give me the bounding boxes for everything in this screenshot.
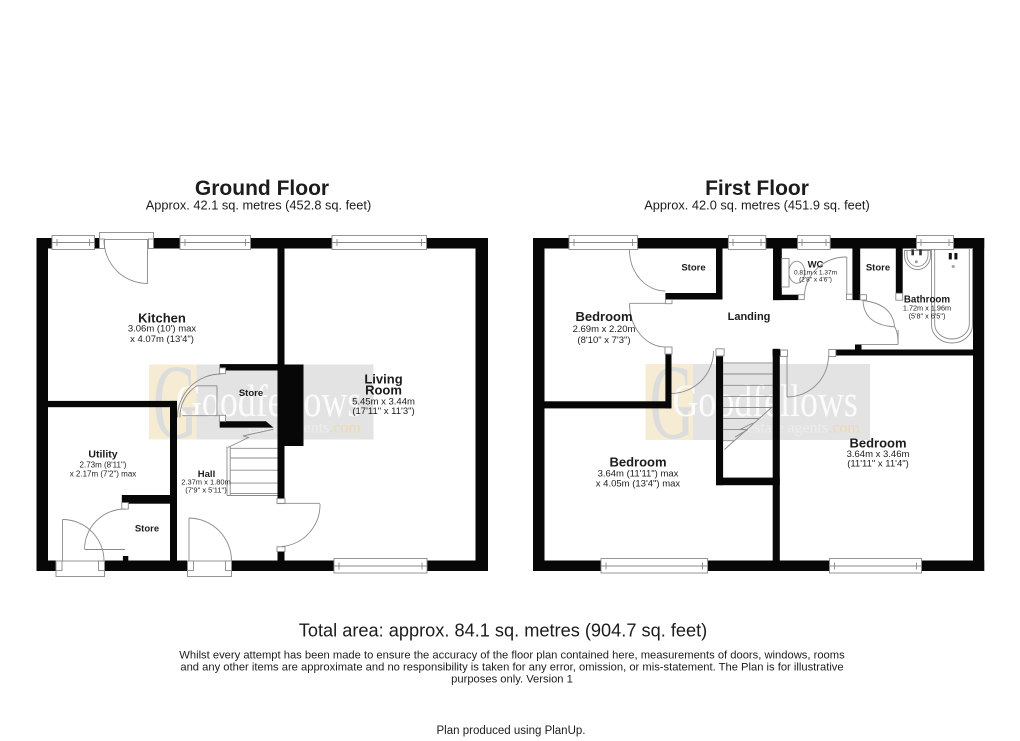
svg-text:(11'11" x 11'4"): (11'11" x 11'4") [847,459,909,470]
svg-text:Store: Store [866,263,890,274]
svg-text:Whilst every attempt has been: Whilst every attempt has been made to en… [179,650,845,662]
svg-text:purposes only. Version 1: purposes only. Version 1 [451,674,573,686]
svg-text:x 4.07m (13'4"): x 4.07m (13'4") [130,334,194,345]
svg-text:(8'10" x 7'3"): (8'10" x 7'3") [577,335,630,346]
svg-text:(5'8" x 6'5"): (5'8" x 6'5") [909,311,946,320]
svg-text:Bedroom: Bedroom [609,455,666,470]
svg-text:and any other items are approx: and any other items are approximate and … [180,662,843,674]
svg-text:2.69m x 2.20m: 2.69m x 2.20m [573,324,636,335]
svg-text:(2'8" x 4'6"): (2'8" x 4'6") [799,277,832,284]
svg-text:(7'9" x 5'11"): (7'9" x 5'11") [185,486,227,495]
svg-text:Store: Store [239,388,263,399]
svg-text:Bedroom: Bedroom [575,309,632,324]
svg-text:Goodfellows: Goodfellows [673,375,858,426]
svg-text:2.73m (8'11"): 2.73m (8'11") [80,461,127,470]
svg-text:Approx. 42.0 sq. metres (451.9: Approx. 42.0 sq. metres (451.9 sq. feet) [644,198,869,213]
svg-text:estate agents.com: estate agents.com [747,420,860,437]
svg-text:0.81m x 1.37m: 0.81m x 1.37m [794,270,837,277]
svg-text:Store: Store [135,524,159,535]
svg-text:x 2.17m (7'2") max: x 2.17m (7'2") max [70,470,137,479]
svg-text:Store: Store [681,263,705,274]
svg-text:Utility: Utility [88,449,117,461]
svg-text:Room: Room [365,383,402,398]
svg-text:Approx. 42.1 sq. metres (452.8: Approx. 42.1 sq. metres (452.8 sq. feet) [146,198,371,213]
svg-text:Goodfellows: Goodfellows [176,375,361,426]
svg-text:(17'11" x 11'3"): (17'11" x 11'3") [352,406,414,417]
svg-text:x 4.05m (13'4") max: x 4.05m (13'4") max [596,479,681,490]
svg-text:Total area: approx. 84.1 sq. m: Total area: approx. 84.1 sq. metres (904… [299,621,707,641]
svg-text:3.06m (10') max: 3.06m (10') max [128,324,197,335]
svg-text:Landing: Landing [728,311,771,323]
svg-text:Plan produced using PlanUp.: Plan produced using PlanUp. [437,725,586,737]
